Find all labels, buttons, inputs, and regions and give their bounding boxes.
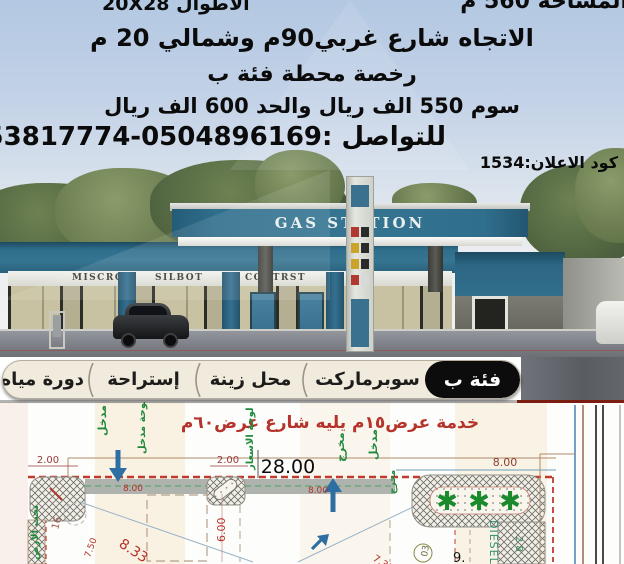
tree-icon: ✱: [499, 487, 521, 517]
ribbon-shadow-line: [0, 400, 521, 403]
category-ribbon: فئة ب سوبرماركت محل زينة إستراحة دورة مي…: [0, 357, 624, 402]
price-digit-yellow: [351, 259, 359, 269]
curb: [0, 329, 624, 331]
tab-separator: [191, 361, 203, 398]
tab-separator: [84, 361, 96, 398]
label-entrance2: مدخل: [367, 429, 380, 460]
tab-rest-area: إستراحة: [96, 361, 191, 398]
direction-text: الاتجاه شارع غربي90م وشمالي 20 م: [0, 24, 624, 52]
price-digit-red: [351, 227, 359, 237]
plan-red-line: [517, 400, 624, 403]
contact-text: للتواصل :0504896169-0553817774: [6, 122, 446, 152]
car-wheel: [121, 333, 136, 348]
label-price-board: لوحة الاسعار: [245, 407, 256, 471]
white-car: [596, 301, 624, 344]
diesel-label: DIESEL: [487, 520, 500, 564]
lengths-text: الأطوال 20X28: [102, 0, 250, 15]
label-exit2: مخرج: [388, 470, 398, 494]
tree-icon: ✱: [436, 487, 458, 517]
tab-decor-shop: محل زينة: [203, 361, 298, 398]
dim-8.00-right: 8.00: [493, 456, 518, 469]
price-digit-dark: [361, 243, 369, 253]
label-exit: مخرج: [334, 432, 348, 462]
dim-2.00-left: 2.00: [37, 455, 59, 466]
price-digit-dark: [361, 227, 369, 237]
price-sign-panel: [351, 299, 369, 347]
site-plan: خدمة عرض١٥م يليه شارع عرض٦٠م ✱ ✱ ✱: [0, 402, 624, 564]
price-digit-dark: [361, 259, 369, 269]
tab-bathroom: دورة مياه: [2, 361, 84, 398]
building-fascia-right: [455, 252, 565, 296]
dim-9: 9.: [453, 551, 465, 564]
car-wheel: [163, 333, 178, 348]
menu-board-screen: [53, 315, 61, 337]
price-digit-red: [351, 275, 359, 285]
license-text: رخصة محطة فئة ب: [0, 62, 624, 87]
tab-category-b: فئة ب: [425, 361, 520, 398]
ribbon-right-shadow: [521, 357, 624, 402]
gas-station-photo: MISCRO SILBOT CONTRST GL GAS STATION: [0, 0, 624, 357]
dim-8.00-band1: 8.00: [123, 484, 143, 494]
parked-car: [113, 303, 189, 345]
ribbon-bar: فئة ب سوبرماركت محل زينة إستراحة دورة مي…: [2, 360, 521, 399]
right-door: [472, 296, 508, 332]
price-digit-yellow: [351, 243, 359, 253]
tab-supermarket: سوبرماركت: [310, 361, 425, 398]
area-text: المساحة 560 م: [460, 0, 624, 14]
dim-6.00: 6.00: [215, 518, 228, 543]
price-sign-pole: [346, 176, 374, 352]
tab-separator: [298, 361, 310, 398]
dim-2.00-mid: 2.00: [217, 455, 239, 466]
marker-03: 03: [420, 545, 432, 558]
label-entrance: مدخل: [96, 405, 109, 436]
dim-2.8: 2.8: [513, 536, 524, 552]
price-text: سوم 550 الف ريال والحد 600 الف ريال: [0, 94, 624, 118]
plan-band: [0, 402, 28, 564]
ad-flyer: MISCRO SILBOT CONTRST GL GAS STATION: [0, 0, 624, 564]
road: [0, 330, 624, 357]
ad-code-text: كود الاعلان:1534: [480, 153, 618, 172]
label-underground: تحت الارض: [30, 505, 41, 560]
price-sign-panel: [351, 185, 369, 207]
label-entrance-board: لوحة مدخل: [137, 402, 148, 454]
dim-28.00: 28.00: [261, 456, 315, 478]
dim-8.00-band2: 8.00: [308, 486, 328, 496]
tree-icon: ✱: [468, 487, 490, 517]
canopy-column: [428, 246, 443, 292]
plan-title: خدمة عرض١٥م يليه شارع عرض٦٠م: [181, 413, 479, 433]
menu-board-sign: [49, 311, 65, 349]
road-marking: [0, 350, 624, 351]
price-digit-blank: [361, 275, 369, 285]
